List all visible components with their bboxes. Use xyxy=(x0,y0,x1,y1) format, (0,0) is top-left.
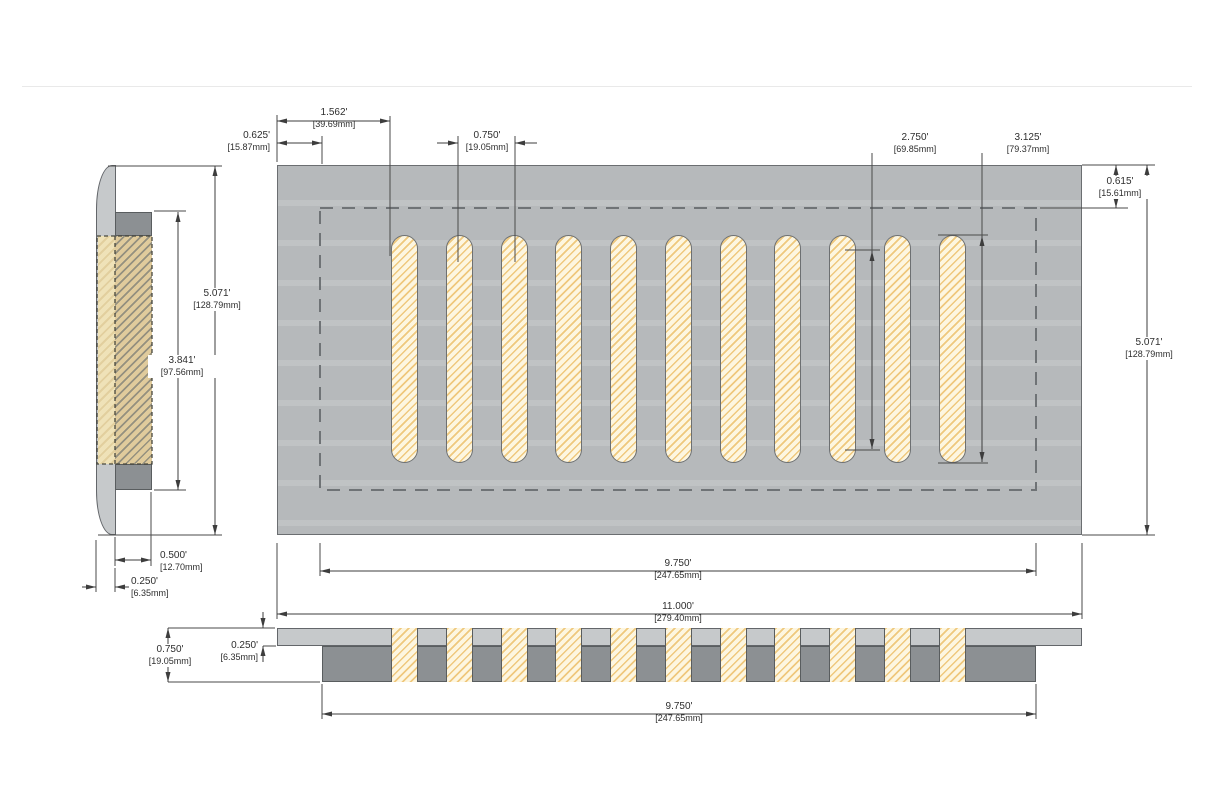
vent-slot xyxy=(829,235,856,463)
vent-slot-section xyxy=(939,628,966,682)
dim-margin-left: 0.625' [15.87mm] xyxy=(190,131,270,152)
dim-side-opening-height: 3.841' [97.56mm] xyxy=(148,355,216,378)
vent-slot-section xyxy=(391,628,418,682)
vent-slot-section xyxy=(829,628,856,682)
dim-front-opening-width: 9.750' [247.65mm] xyxy=(629,702,729,723)
side-box-wall-bottom xyxy=(115,464,152,490)
vent-slot xyxy=(720,235,747,463)
dim-overall-width: 11.000' [279.40mm] xyxy=(628,602,728,623)
vent-slot-section xyxy=(610,628,637,682)
dim-slot-offset-left: 1.562' [39.69mm] xyxy=(294,108,374,129)
vent-slot xyxy=(665,235,692,463)
page-divider-line xyxy=(22,86,1192,87)
vent-slot xyxy=(610,235,637,463)
dim-margin-top: 0.615' [15.61mm] xyxy=(1086,176,1154,199)
side-box-opening-hatch xyxy=(115,236,152,464)
dim-overall-depth-right: 5.071' [128.79mm] xyxy=(1112,337,1186,360)
vent-slot xyxy=(884,235,911,463)
dim-side-overall-height: 5.071' [128.79mm] xyxy=(180,288,254,311)
drawing-canvas: 1.562' [39.69mm] 0.625' [15.87mm] 0.750'… xyxy=(0,0,1214,809)
dim-plate-thickness-side: 0.250' [6.35mm] xyxy=(131,577,211,598)
vent-slot-section xyxy=(884,628,911,682)
vent-slot-section xyxy=(555,628,582,682)
vent-slot xyxy=(774,235,801,463)
vent-slot xyxy=(446,235,473,463)
vent-slot xyxy=(939,235,966,463)
dim-box-depth: 0.500' [12.70mm] xyxy=(160,551,240,572)
dim-slot-straight-length: 2.750' [69.85mm] xyxy=(875,133,955,154)
dim-front-plate-thickness: 0.250' [6.35mm] xyxy=(178,641,258,662)
vent-slot-section xyxy=(446,628,473,682)
side-box-wall-top xyxy=(115,212,152,236)
vent-slot xyxy=(501,235,528,463)
vent-slot xyxy=(555,235,582,463)
dim-slot-full-length: 3.125' [79.37mm] xyxy=(988,133,1068,154)
side-slot-cut-through-plate xyxy=(98,236,115,464)
vent-slot-section xyxy=(665,628,692,682)
vent-slot-section xyxy=(501,628,528,682)
vent-slot-section xyxy=(720,628,747,682)
vent-slot xyxy=(391,235,418,463)
vent-slot-section xyxy=(774,628,801,682)
dim-slot-pitch: 0.750' [19.05mm] xyxy=(447,131,527,152)
dim-opening-width-top: 9.750' [247.65mm] xyxy=(628,559,728,580)
